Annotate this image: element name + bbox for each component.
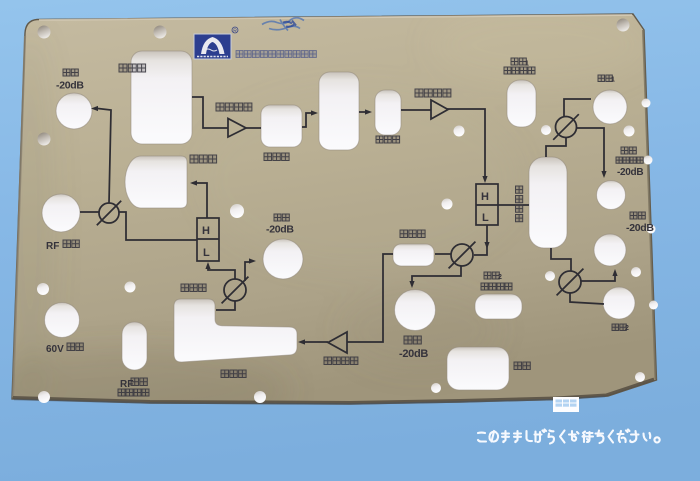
svg-text:RF: RF	[120, 379, 133, 390]
svg-text:H: H	[481, 191, 489, 203]
svg-text:R: R	[233, 28, 237, 34]
svg-text:60V: 60V	[46, 344, 64, 355]
svg-text:-20dB: -20dB	[617, 167, 643, 178]
svg-text:L: L	[203, 247, 210, 259]
svg-text:-20dB: -20dB	[56, 80, 84, 92]
svg-text:H: H	[202, 225, 210, 237]
svg-text:RF: RF	[46, 241, 59, 252]
svg-text:1: 1	[611, 77, 615, 84]
svg-text:-20dB: -20dB	[626, 222, 654, 234]
svg-text:2: 2	[498, 274, 502, 281]
svg-text:L: L	[482, 212, 489, 224]
svg-text:2: 2	[625, 325, 629, 332]
svg-text:-20dB: -20dB	[399, 348, 428, 360]
svg-text:1: 1	[525, 61, 529, 68]
svg-text:-20dB: -20dB	[266, 224, 294, 236]
